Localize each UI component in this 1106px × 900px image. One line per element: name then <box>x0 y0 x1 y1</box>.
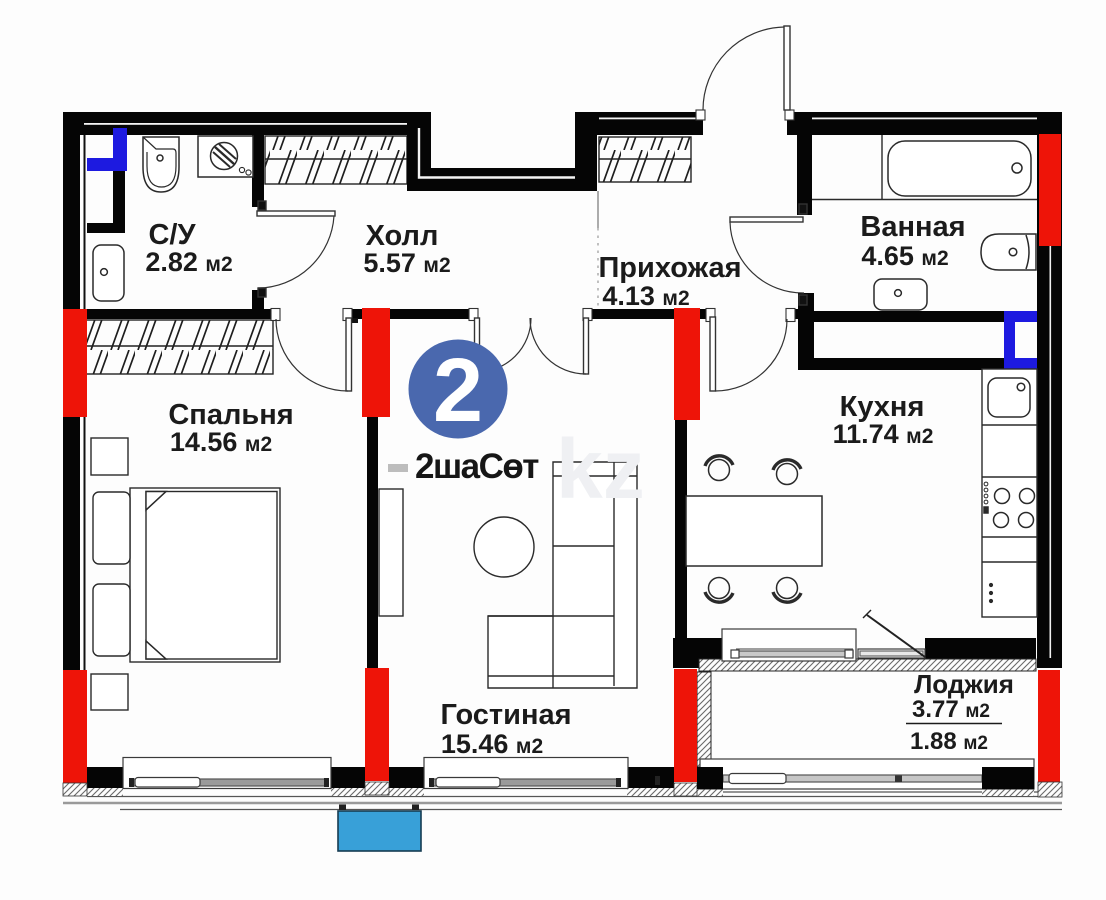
svg-text:1.88 м2: 1.88 м2 <box>910 728 988 755</box>
svg-text:kz: kz <box>556 422 645 516</box>
svg-text:Прихожая: Прихожая <box>598 252 741 284</box>
svg-text:2шаСөт: 2шаСөт <box>415 447 539 486</box>
svg-text:2: 2 <box>433 341 483 441</box>
svg-text:Ванная: Ванная <box>860 211 965 243</box>
svg-text:3.77 м2: 3.77 м2 <box>912 696 990 723</box>
svg-text:Гостиная: Гостиная <box>440 699 571 731</box>
svg-text:Лоджия: Лоджия <box>914 669 1014 699</box>
